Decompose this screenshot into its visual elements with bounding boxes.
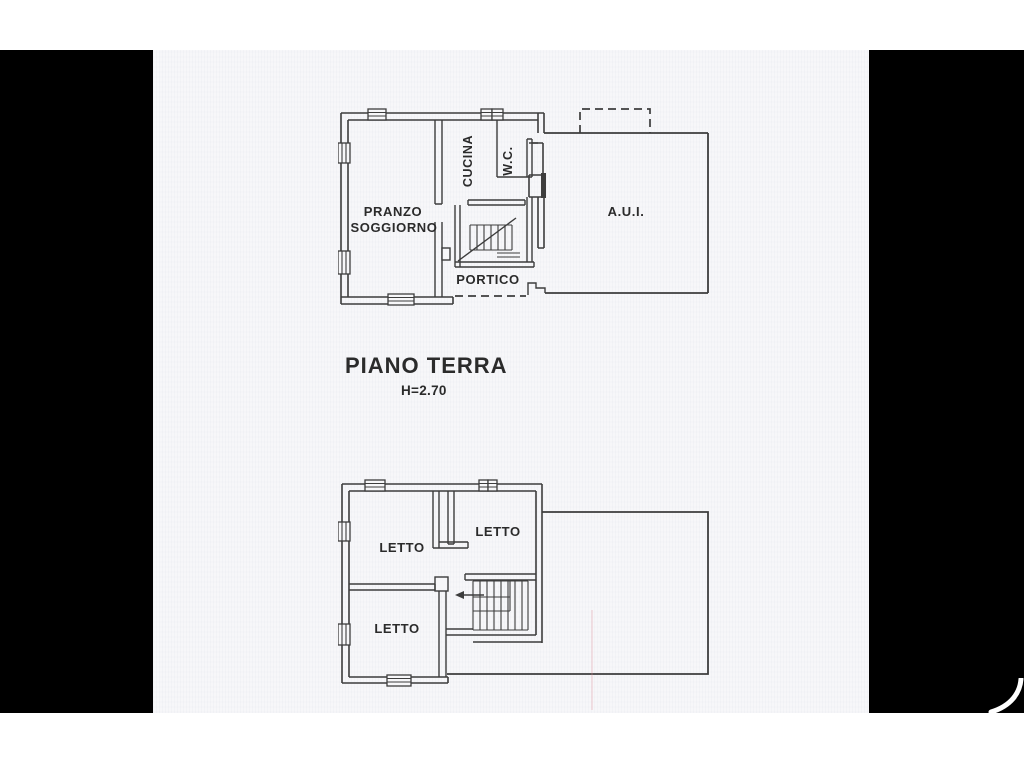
room-label-wc: W.C. (501, 146, 515, 175)
first-letto-tl-wall (433, 491, 468, 548)
first-center-pillar (435, 577, 448, 591)
ground-door-jamb (541, 173, 546, 198)
first-corridor-wall (439, 591, 473, 677)
room-label-letto-top-left: LETTO (379, 540, 424, 555)
room-label-soggiorno: SOGGIORNO (350, 220, 437, 235)
first-letto-tr-bottom-wall (465, 574, 536, 580)
floor-plan-ground: PRANZO SOGGIORNO CUCINA W.C. A.U.I. PORT… (338, 96, 716, 308)
scan-arc-mark (982, 678, 1024, 720)
room-label-letto-top-right: LETTO (475, 524, 520, 539)
first-letto-bottom-top-wall (349, 584, 435, 590)
ground-dashed-annex (580, 109, 650, 133)
ground-wall-notch (442, 248, 450, 260)
ground-stairs (470, 225, 520, 257)
floor-plan-title: PIANO TERRA (345, 353, 508, 379)
floor-height-note: H=2.70 (401, 383, 447, 398)
first-stairs (473, 581, 528, 630)
ground-stair-enclosure (455, 197, 534, 267)
room-label-cucina: CUCINA (461, 135, 475, 187)
scan-artifact-line (591, 610, 593, 710)
scanned-page: PRANZO SOGGIORNO CUCINA W.C. A.U.I. PORT… (153, 50, 869, 713)
first-letto-tr-wall (448, 491, 454, 544)
ground-pranzo-wall (435, 120, 442, 297)
ground-hall-wall (468, 200, 525, 205)
room-label-letto-bottom: LETTO (374, 621, 419, 636)
scan-background-band: PRANZO SOGGIORNO CUCINA W.C. A.U.I. PORT… (0, 50, 1024, 713)
first-stair-enclosure (473, 635, 542, 642)
floor-plan-first: LETTO LETTO LETTO (338, 478, 716, 693)
ground-pillar-step (528, 283, 545, 295)
room-label-aui: A.U.I. (608, 204, 645, 219)
first-stairs-arrowhead (455, 591, 464, 599)
room-label-portico: PORTICO (456, 272, 519, 287)
room-label-pranzo: PRANZO (364, 204, 423, 219)
